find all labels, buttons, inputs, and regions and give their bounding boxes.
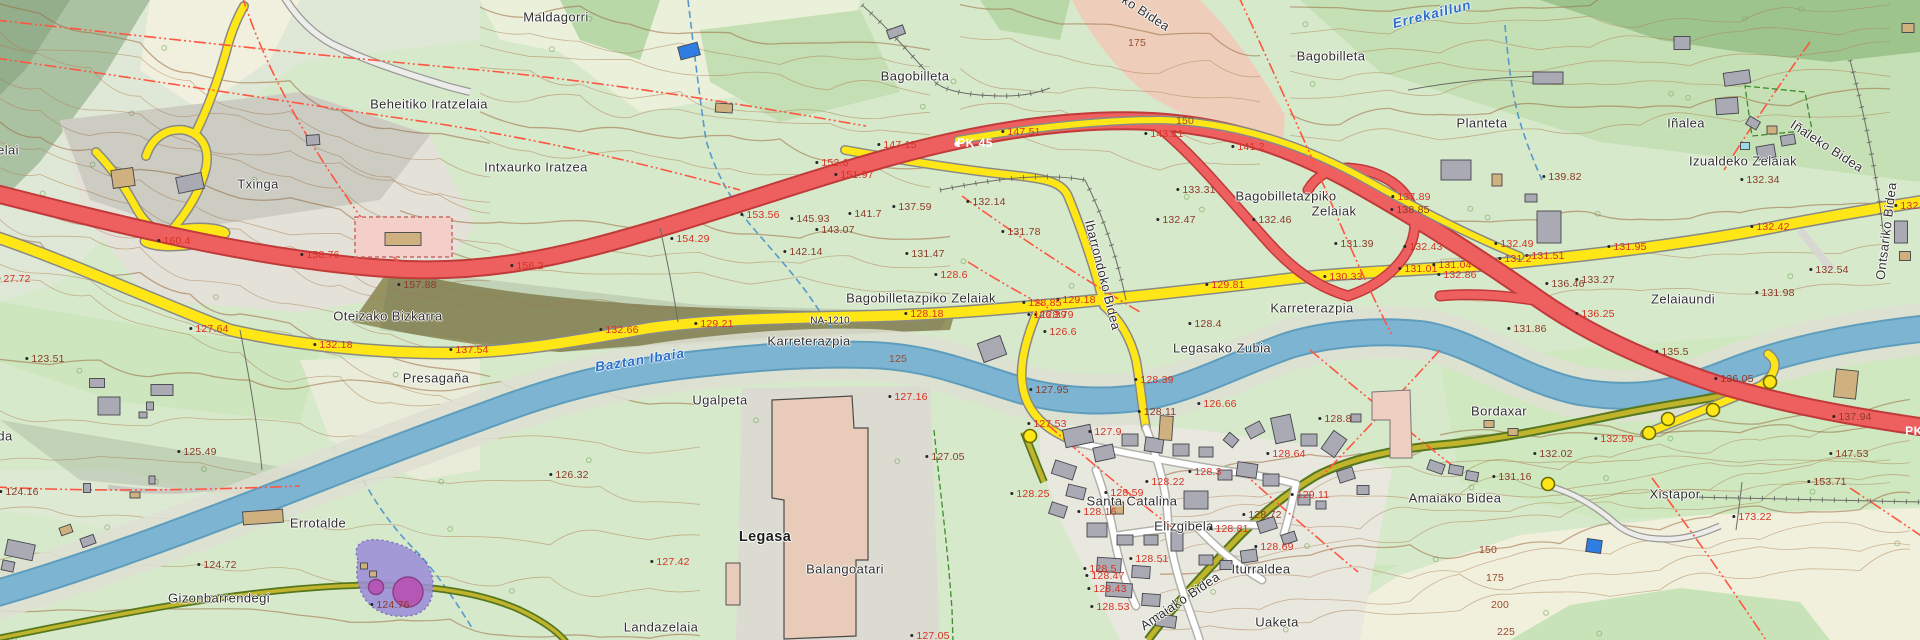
building bbox=[715, 103, 733, 113]
building bbox=[1586, 539, 1603, 554]
map-viewport[interactable]: elaiBeheitiko IratzelaiaMaldagorriBagobi… bbox=[0, 0, 1920, 640]
building bbox=[1484, 421, 1494, 428]
building bbox=[1097, 557, 1122, 573]
building bbox=[1122, 434, 1138, 446]
pk-marker-dot bbox=[954, 141, 959, 146]
building bbox=[84, 484, 91, 493]
building bbox=[139, 412, 147, 418]
building bbox=[1902, 24, 1914, 33]
building bbox=[1106, 582, 1133, 598]
building bbox=[1900, 252, 1911, 261]
building bbox=[1741, 143, 1750, 150]
building bbox=[1173, 444, 1189, 456]
building bbox=[1767, 126, 1777, 134]
trail-node bbox=[1764, 376, 1777, 389]
building bbox=[1508, 429, 1518, 436]
building bbox=[1240, 549, 1258, 563]
building bbox=[147, 402, 154, 410]
building bbox=[1199, 447, 1213, 457]
building bbox=[90, 379, 105, 388]
building bbox=[1525, 194, 1537, 202]
building bbox=[1111, 502, 1124, 514]
building bbox=[1465, 471, 1478, 482]
building bbox=[1448, 464, 1463, 475]
building bbox=[1441, 160, 1471, 180]
building bbox=[243, 509, 284, 525]
building bbox=[1895, 221, 1908, 243]
building bbox=[1715, 97, 1738, 114]
building bbox=[1142, 593, 1161, 606]
building bbox=[306, 134, 320, 145]
trail-node bbox=[1643, 427, 1656, 440]
trail-node bbox=[1707, 404, 1720, 417]
building bbox=[1144, 535, 1158, 545]
building bbox=[1132, 565, 1151, 578]
building bbox=[1263, 474, 1279, 486]
building bbox=[1155, 614, 1176, 629]
building bbox=[1184, 491, 1208, 509]
building bbox=[1298, 495, 1310, 505]
building bbox=[1756, 144, 1776, 160]
building bbox=[385, 233, 421, 246]
map-canvas bbox=[0, 0, 1920, 640]
building bbox=[1834, 369, 1859, 399]
factory-building bbox=[772, 396, 868, 639]
building bbox=[98, 397, 120, 415]
building bbox=[1301, 434, 1317, 446]
building bbox=[1159, 416, 1174, 441]
trail-node bbox=[1024, 430, 1037, 443]
building bbox=[1780, 134, 1796, 146]
building bbox=[1537, 211, 1561, 243]
building bbox=[1117, 535, 1133, 545]
building bbox=[1236, 462, 1258, 479]
building bbox=[1533, 72, 1563, 84]
building bbox=[149, 476, 155, 484]
building bbox=[370, 571, 377, 577]
building bbox=[1492, 174, 1502, 186]
building bbox=[151, 385, 173, 396]
building bbox=[1087, 523, 1107, 537]
building bbox=[1351, 414, 1361, 422]
building bbox=[1199, 555, 1213, 565]
building bbox=[1218, 470, 1232, 480]
building bbox=[130, 492, 140, 498]
building bbox=[1171, 531, 1183, 551]
building bbox=[361, 563, 368, 569]
building bbox=[111, 168, 135, 189]
trail-node bbox=[1662, 413, 1675, 426]
building bbox=[726, 563, 740, 605]
building bbox=[1357, 486, 1369, 495]
building bbox=[1316, 501, 1326, 509]
building bbox=[1, 560, 15, 572]
building bbox=[1220, 561, 1232, 570]
trail-node bbox=[1542, 478, 1555, 491]
building bbox=[1674, 37, 1690, 50]
